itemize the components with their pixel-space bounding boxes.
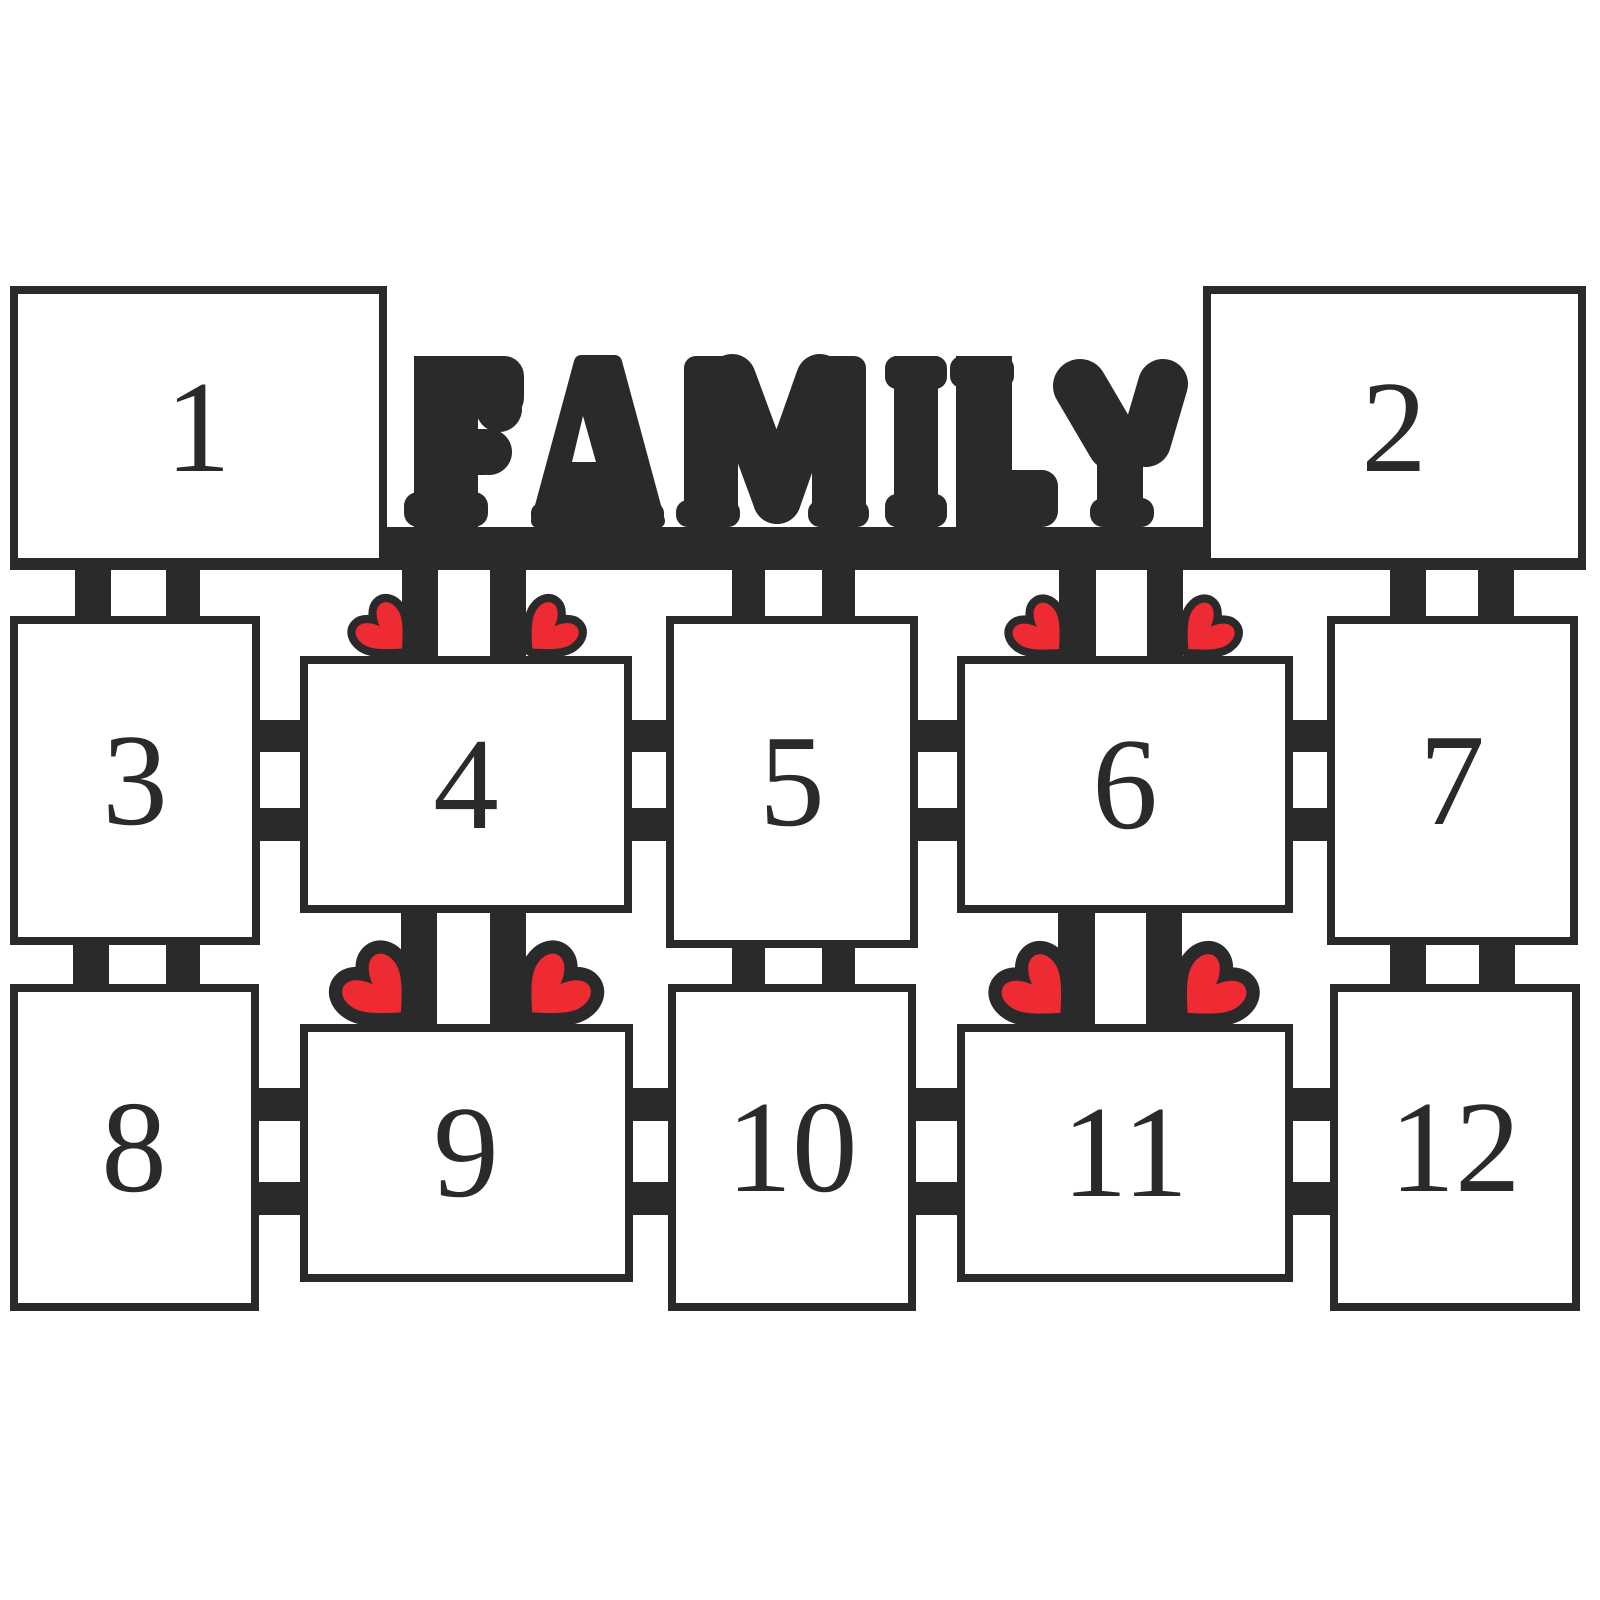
svg-text:8: 8 — [101, 1075, 167, 1220]
svg-text:3: 3 — [102, 708, 168, 853]
svg-text:10: 10 — [727, 1075, 858, 1220]
svg-text:4: 4 — [433, 712, 499, 857]
svg-text:12: 12 — [1390, 1075, 1521, 1220]
svg-text:5: 5 — [759, 709, 825, 854]
svg-text:9: 9 — [433, 1080, 499, 1225]
svg-text:2: 2 — [1361, 355, 1427, 500]
svg-text:7: 7 — [1419, 708, 1485, 853]
svg-text:1: 1 — [165, 355, 231, 500]
svg-text:6: 6 — [1092, 712, 1158, 857]
svg-text:11: 11 — [1062, 1080, 1188, 1225]
